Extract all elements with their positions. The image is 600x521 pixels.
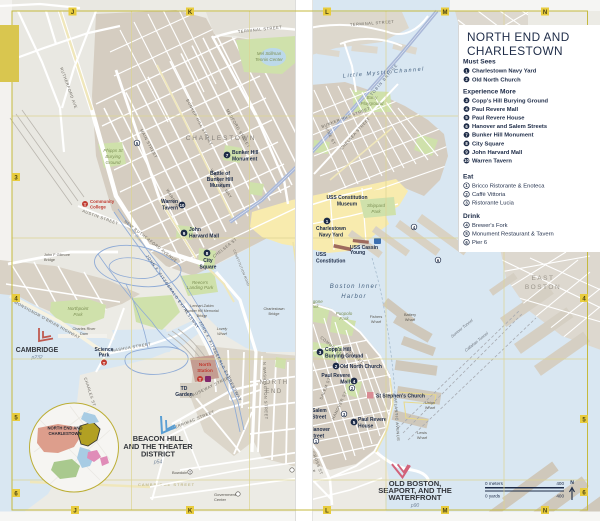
svg-text:4: 4 [353,379,356,384]
svg-text:Boston Inner: Boston Inner [330,284,378,290]
svg-text:Bunker Hill: Bunker Hill [232,150,259,156]
svg-text:T: T [199,377,202,382]
svg-text:Wharf: Wharf [217,332,228,336]
svg-text:North: North [199,362,211,367]
svg-text:M: M [443,10,448,16]
svg-text:Battery: Battery [404,313,416,317]
svg-text:Copp's Hill Burying Ground: Copp's Hill Burying Ground [472,98,549,104]
svg-text:K: K [188,509,193,515]
svg-text:Brewer's Fork: Brewer's Fork [472,223,508,229]
svg-text:Caffè Vittoria: Caffè Vittoria [472,192,506,198]
svg-text:Bridge: Bridge [197,314,207,318]
svg-text:NORTH END AND: NORTH END AND [48,426,83,431]
svg-text:John: John [189,227,201,233]
svg-text:N: N [543,509,547,515]
svg-text:Museum: Museum [337,202,358,208]
svg-text:Experience More: Experience More [463,89,516,96]
svg-text:Wharf: Wharf [371,320,382,324]
svg-text:Park: Park [371,209,381,214]
svg-text:Center: Center [214,497,227,502]
svg-text:USS Constitution: USS Constitution [326,195,367,201]
svg-text:7: 7 [226,153,229,158]
svg-text:10: 10 [180,203,185,208]
svg-text:Must Sees: Must Sees [463,59,496,66]
svg-text:College: College [90,205,106,210]
svg-text:5: 5 [353,420,356,425]
svg-text:400: 400 [556,494,564,499]
svg-text:Union: Union [425,401,435,405]
svg-text:Phipps St: Phipps St [103,148,123,153]
svg-text:Bridge: Bridge [44,258,55,262]
svg-text:Bowdoin: Bowdoin [172,470,187,475]
svg-text:Lennart-Zakim: Lennart-Zakim [190,304,213,308]
svg-text:Square: Square [200,265,217,271]
svg-text:T: T [84,202,87,207]
svg-text:Paul Revere: Paul Revere [321,373,350,379]
svg-text:J: J [73,509,76,515]
svg-text:Ristorante Lucia: Ristorante Lucia [472,201,515,207]
svg-text:Mall: Mall [340,380,350,386]
svg-text:Bricco Ristorante & Enoteca: Bricco Ristorante & Enoteca [472,184,545,190]
svg-text:Northpoint: Northpoint [68,306,90,311]
svg-text:House: House [358,424,374,430]
svg-text:WATERFRONT: WATERFRONT [388,493,441,502]
svg-text:Bunker Hill Memorial: Bunker Hill Memorial [185,309,218,313]
svg-text:Charlestown: Charlestown [316,226,346,232]
svg-text:Paul Revere: Paul Revere [358,417,387,423]
svg-text:CHARLESTOWN: CHARLESTOWN [49,431,82,436]
svg-text:John Harvard Mall: John Harvard Mall [472,150,523,156]
svg-text:Bridge: Bridge [269,312,280,316]
svg-text:St Stephen's Church: St Stephen's Church [376,394,425,400]
svg-text:CHARLESTOWN: CHARLESTOWN [186,135,257,142]
svg-text:Drink: Drink [463,213,480,220]
svg-text:Wharf: Wharf [405,318,416,322]
svg-text:Monument Restaurant & Tavern: Monument Restaurant & Tavern [472,232,554,238]
svg-text:T: T [103,361,106,366]
svg-text:Hanover and Salem Streets: Hanover and Salem Streets [472,124,547,130]
svg-text:K: K [188,10,193,16]
svg-text:Charles River: Charles River [73,327,97,331]
svg-text:p54: p54 [153,460,163,466]
svg-text:Dam: Dam [80,332,88,336]
svg-text:Barry: Barry [367,95,379,100]
svg-text:0 meters: 0 meters [485,481,504,486]
svg-text:Tennis Center: Tennis Center [255,57,283,62]
svg-text:Copp's Hill: Copp's Hill [325,347,352,353]
svg-text:0 yards: 0 yards [485,494,501,499]
svg-text:Old North Church: Old North Church [340,364,382,370]
svg-text:Old North Church: Old North Church [472,77,521,83]
svg-text:END: END [265,388,282,395]
svg-text:L: L [325,509,329,515]
svg-text:Charlestown Navy Yard: Charlestown Navy Yard [472,69,537,75]
svg-text:John F Gilmore: John F Gilmore [44,253,70,257]
svg-text:Hanover: Hanover [310,427,330,433]
svg-text:Park: Park [99,353,110,359]
svg-text:NORTH END AND: NORTH END AND [467,30,570,44]
svg-text:Charlestown: Charlestown [263,307,284,311]
svg-text:DISTRICT: DISTRICT [141,450,176,459]
svg-text:Mel Stillman: Mel Stillman [257,51,282,56]
svg-text:Young: Young [350,250,365,256]
svg-text:Tavern: Tavern [162,206,178,212]
svg-text:Monument: Monument [232,157,258,163]
svg-text:J: J [71,10,74,16]
svg-text:Park: Park [339,316,349,321]
svg-text:Burying: Burying [105,154,121,159]
svg-text:Burying Ground: Burying Ground [325,354,363,360]
svg-text:City Square: City Square [472,141,505,147]
svg-text:Paul Revere Mall: Paul Revere Mall [472,107,518,113]
svg-text:Harbor: Harbor [341,294,367,300]
svg-text:Station: Station [197,368,213,373]
svg-text:Street: Street [312,415,327,421]
svg-text:Paul Revere House: Paul Revere House [472,116,525,122]
svg-text:Landing Park: Landing Park [187,285,214,290]
svg-text:8: 8 [206,251,209,256]
svg-text:Ground: Ground [105,160,121,165]
svg-text:L: L [325,10,329,16]
svg-text:N: N [570,480,574,486]
svg-text:City: City [203,258,213,264]
svg-text:Lewis: Lewis [417,431,427,435]
svg-text:2: 2 [335,364,338,369]
svg-text:Park: Park [73,312,83,317]
svg-text:Bunker Hill Monument: Bunker Hill Monument [472,133,534,139]
svg-text:Garden: Garden [175,392,193,398]
svg-text:Salem: Salem [312,408,327,414]
svg-text:Harvard Mall: Harvard Mall [189,234,220,240]
svg-text:Constitution: Constitution [316,259,345,265]
svg-text:NORTH: NORTH [260,379,289,386]
svg-text:M: M [443,509,448,515]
svg-text:USS: USS [316,252,327,258]
svg-text:Fishers: Fishers [370,315,383,319]
svg-text:Pier 6: Pier 6 [472,240,487,246]
svg-text:1: 1 [326,219,329,224]
svg-text:3: 3 [319,350,322,355]
svg-text:EAST: EAST [532,275,555,282]
svg-text:Wharf: Wharf [417,436,428,440]
svg-text:N: N [543,10,547,16]
svg-text:CAMBRIDGE: CAMBRIDGE [16,347,59,354]
svg-text:p232: p232 [30,355,42,361]
svg-text:Eat: Eat [463,174,474,181]
svg-text:Lovely: Lovely [217,327,228,331]
svg-text:Community: Community [90,199,115,204]
svg-text:Shippard: Shippard [367,203,386,208]
svg-text:9: 9 [183,231,186,236]
svg-text:p90: p90 [410,503,420,509]
svg-text:Warren: Warren [161,199,178,205]
svg-text:Wharf: Wharf [425,406,436,410]
svg-text:400: 400 [556,481,564,486]
svg-text:BOSTON: BOSTON [525,284,561,291]
svg-text:10: 10 [464,158,469,163]
svg-text:CHARLESTOWN: CHARLESTOWN [467,44,563,58]
svg-text:Navy Yard: Navy Yard [319,233,343,239]
svg-text:Museum: Museum [210,183,231,189]
svg-text:Playground: Playground [361,101,384,106]
svg-text:Warren Tavern: Warren Tavern [472,159,512,165]
